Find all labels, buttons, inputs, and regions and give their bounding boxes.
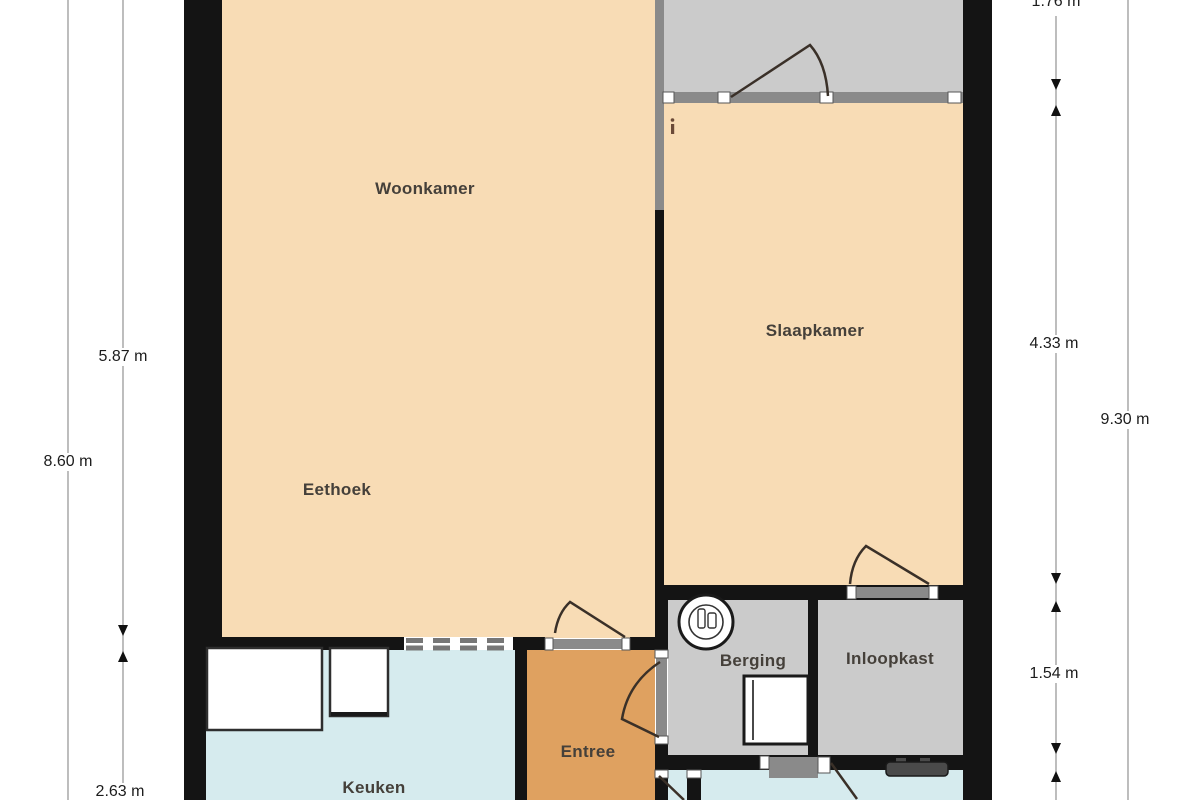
switch-mark-icon	[671, 118, 675, 134]
room-label-entree: Entree	[561, 742, 616, 762]
open-connection-dashes	[404, 637, 513, 650]
dim-label-9-30: 9.30 m	[1096, 411, 1155, 429]
dim-label-1-54: 1.54 m	[1025, 665, 1084, 683]
dim-label-8-60: 8.60 m	[39, 453, 98, 471]
room-label-woonkamer: Woonkamer	[375, 179, 475, 199]
floorplan-page: Woonkamer Slaapkamer Eethoek Berging Inl…	[0, 0, 1200, 800]
woonkamer-floor	[222, 0, 655, 638]
inloopkast-floor	[818, 600, 963, 755]
room-label-inloopkast: Inloopkast	[846, 649, 934, 669]
floorplan-drawing	[0, 0, 1200, 800]
room-label-eethoek: Eethoek	[303, 480, 371, 500]
dim-label-1-76: 1.76 m	[1027, 0, 1086, 11]
balcony-floor	[663, 0, 963, 92]
room-label-berging: Berging	[720, 651, 786, 671]
dim-label-5-87: 5.87 m	[94, 348, 153, 366]
washing-machine-icon	[679, 595, 733, 649]
boiler-unit-icon	[744, 676, 808, 744]
room-label-keuken: Keuken	[342, 778, 405, 798]
dim-label-4-33: 4.33 m	[1025, 335, 1084, 353]
room-label-slaapkamer: Slaapkamer	[766, 321, 864, 341]
dim-label-2-63: 2.63 m	[91, 783, 150, 800]
slaapkamer-floor	[664, 103, 963, 585]
